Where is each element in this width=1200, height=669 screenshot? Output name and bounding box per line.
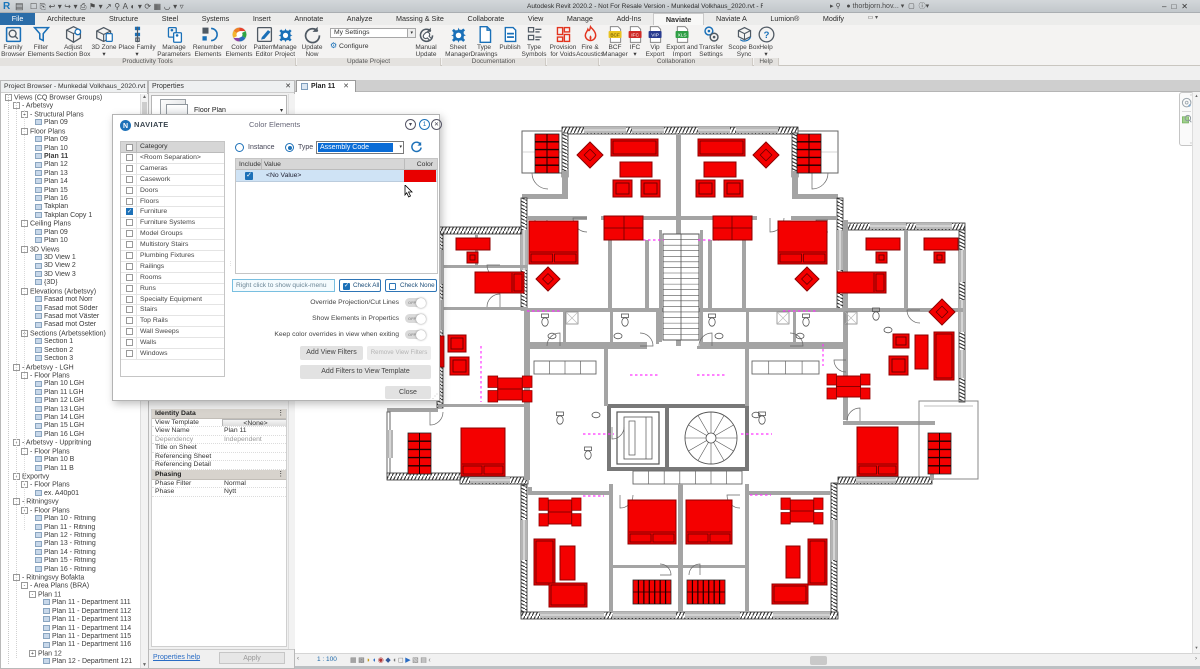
svg-text:BCF: BCF [610, 32, 620, 38]
svg-text:N: N [123, 123, 128, 130]
svg-text:VIP: VIP [651, 32, 659, 38]
svg-text:IFC: IFC [631, 32, 639, 38]
svg-text:?: ? [763, 30, 769, 41]
svg-text:XLS: XLS [677, 32, 686, 38]
